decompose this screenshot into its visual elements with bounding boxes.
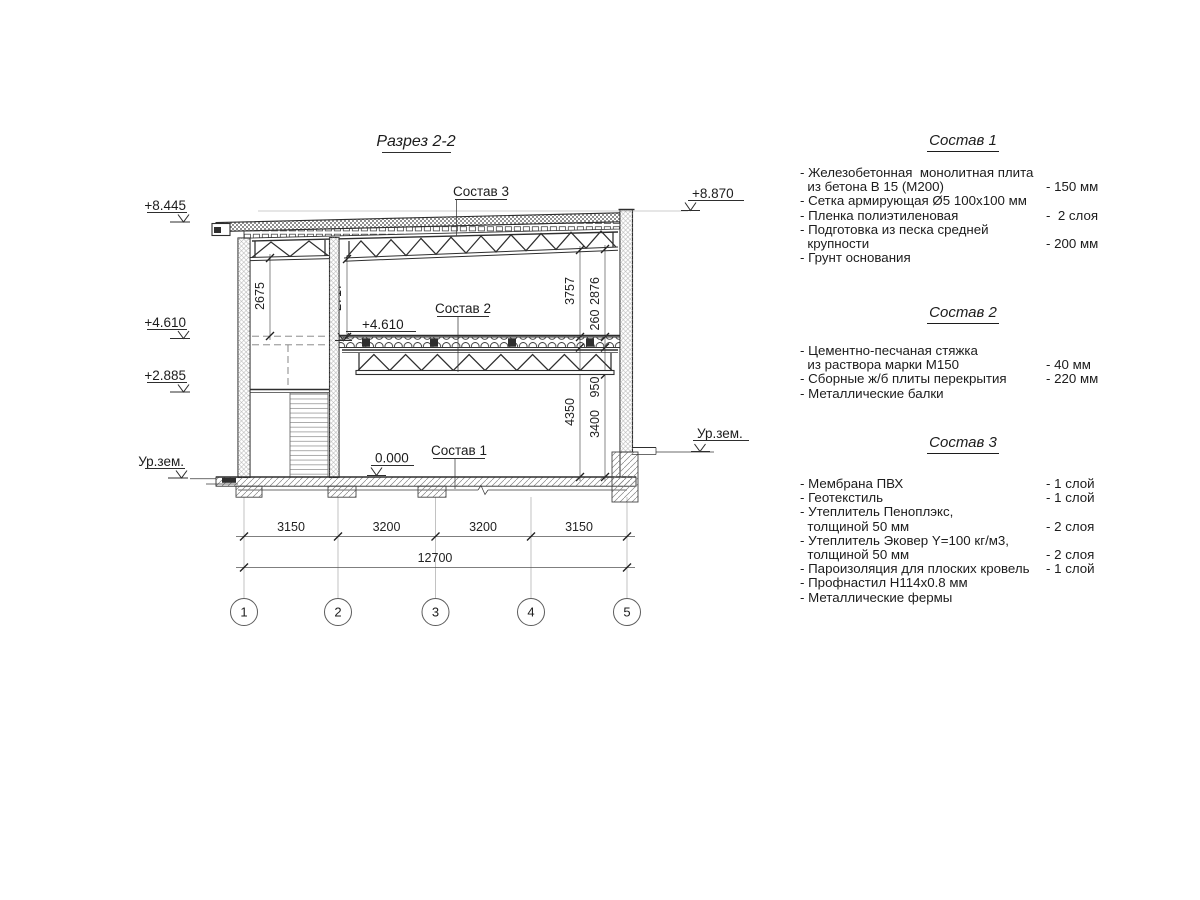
gutter <box>212 224 230 236</box>
dim-3400: 3400 <box>588 410 602 438</box>
layer-thickness: - 150 мм <box>1046 180 1126 194</box>
dim-4350: 4350 <box>563 398 577 426</box>
layer-item: - Железобетонная монолитная плита из бет… <box>800 166 1126 194</box>
dim-950: 950 <box>588 377 602 398</box>
truss-bottom-chord <box>356 371 614 375</box>
layer-item: - Пароизоляция для плоских кровель- 1 сл… <box>800 562 1126 576</box>
axis-5: 5 <box>623 605 630 620</box>
layer-name: - Железобетонная монолитная плита из бет… <box>800 166 1046 194</box>
elevation-roof-left: +8.445 <box>144 198 186 213</box>
composition-heading-1: Состав 1 <box>800 132 1126 150</box>
dim-span-1: 3150 <box>277 520 305 534</box>
layer-list-3: - Мембрана ПВХ- 1 слой - Геотекстиль- 1 … <box>800 477 1126 605</box>
layer-name: - Профнастил Н114х0.8 мм <box>800 576 1046 590</box>
layer-name: - Металлические фермы <box>800 591 1046 605</box>
layer-name: - Пленка полиэтиленовая <box>800 209 1046 223</box>
composition-heading-3: Состав 3 <box>800 434 1126 452</box>
callout-label-2: Состав 2 <box>435 301 491 316</box>
layer-item: - Цементно-песчаная стяжка из раствора м… <box>800 344 1126 372</box>
layer-item: - Мембрана ПВХ- 1 слой <box>800 477 1126 491</box>
layer-name: - Цементно-песчаная стяжка из раствора м… <box>800 344 1046 372</box>
axis-3: 3 <box>432 605 439 620</box>
dim-span-2: 3200 <box>373 520 401 534</box>
layer-item: - Пленка полиэтиленовая- 2 слоя <box>800 209 1126 223</box>
layer-name: - Сборные ж/б плиты перекрытия <box>800 372 1046 386</box>
axis-2: 2 <box>334 605 341 620</box>
callout-label-3: Состав 3 <box>453 184 509 199</box>
hidden-floor-dashed-lines <box>252 336 330 389</box>
dim-3757: 3757 <box>563 277 577 305</box>
layer-item: - Профнастил Н114х0.8 мм <box>800 576 1126 590</box>
right-foundation <box>612 452 638 502</box>
break-symbol <box>478 486 488 495</box>
composition-block-1: Состав 1 - Железобетонная монолитная пли… <box>800 132 1126 265</box>
layer-list-2: - Цементно-песчаная стяжка из раствора м… <box>800 344 1126 401</box>
ground-level-left: Ур.зем. <box>138 454 184 469</box>
layer-thickness: - 1 слой <box>1046 562 1126 576</box>
axis-4: 4 <box>527 605 534 620</box>
layer-thickness: - 200 мм <box>1046 237 1126 251</box>
hollow-core-slab-band <box>339 337 620 348</box>
layer-item: - Грунт основания <box>800 251 1126 265</box>
dim-2876: 2876 <box>588 277 602 305</box>
layer-name: - Утеплитель Пеноплэкс, толщиной 50 мм <box>800 505 1046 533</box>
roof-slab <box>212 213 620 238</box>
stair <box>250 390 333 478</box>
drawing-sheet: 2675 2717 3757 4350 2876 260 950 3400 <box>0 0 1200 900</box>
layer-thickness: - 220 мм <box>1046 372 1126 386</box>
layer-name: - Сетка армирующая Ø5 100х100 мм <box>800 194 1046 208</box>
layer-name: - Геотекстиль <box>800 491 1046 505</box>
layer-thickness: - 40 мм <box>1046 358 1126 372</box>
composition-block-2: Состав 2 - Цементно-песчаная стяжка из р… <box>800 304 1126 401</box>
composition-heading-2: Состав 2 <box>800 304 1126 322</box>
right-wall <box>619 210 635 478</box>
axis2-wall <box>330 238 340 478</box>
elevation-mark-ground-right: Ур.зем. <box>691 426 749 452</box>
composition-heading-3-text: Состав 3 <box>927 434 999 454</box>
dim-2675: 2675 <box>253 282 267 310</box>
layer-thickness: - 2 слоя <box>1046 520 1126 534</box>
layer-name: - Грунт основания <box>800 251 1046 265</box>
elevation-zero: 0.000 <box>375 451 409 466</box>
composition-heading-2-text: Состав 2 <box>927 304 999 324</box>
composition-heading-1-text: Состав 1 <box>927 132 999 152</box>
layer-list-1: - Железобетонная монолитная плита из бет… <box>800 166 1126 265</box>
elevation-mark-landing: +2.885 <box>144 368 190 392</box>
layer-thickness: - 1 слой <box>1046 491 1126 505</box>
layer-item: - Металлические фермы <box>800 591 1126 605</box>
drawing-title: Разрез 2-2 <box>376 133 455 153</box>
layer-thickness: - 1 слой <box>1046 477 1126 491</box>
layer-name: - Подготовка из песка средней крупности <box>800 223 1046 251</box>
layer-thickness: - 2 слоя <box>1046 209 1126 223</box>
layer-item: - Геотекстиль- 1 слой <box>800 491 1126 505</box>
elevation-mark-roof-right: +8.870 <box>681 186 744 211</box>
elevation-mid-left: +4.610 <box>144 315 186 330</box>
layer-name: - Пароизоляция для плоских кровель <box>800 562 1046 576</box>
composition-block-3: Состав 3 - Мембрана ПВХ- 1 слой - Геотек… <box>800 434 1126 605</box>
stair-flight <box>290 393 328 477</box>
layer-thickness: - 2 слоя <box>1046 548 1126 562</box>
layer-item: - Сетка армирующая Ø5 100х100 мм <box>800 194 1126 208</box>
dim-260: 260 <box>588 310 602 331</box>
dim-span-3: 3200 <box>469 520 497 534</box>
callout-label-1: Состав 1 <box>431 443 487 458</box>
layer-name: - Мембрана ПВХ <box>800 477 1046 491</box>
axis-1: 1 <box>240 605 247 620</box>
elevation-mark-roof-left: +8.445 <box>144 198 190 222</box>
layer-item: - Подготовка из песка средней крупности-… <box>800 223 1126 251</box>
mid-floor <box>339 336 620 375</box>
elevation-mid-inner: +4.610 <box>362 317 404 332</box>
dim-span-4: 3150 <box>565 520 593 534</box>
layer-name: - Утеплитель Эковер Y=100 кг/м3, толщино… <box>800 534 1046 562</box>
layer-name: - Металлические балки <box>800 387 1046 401</box>
layer-item: - Утеплитель Эковер Y=100 кг/м3, толщино… <box>800 534 1126 562</box>
elevation-mark-mid-left: +4.610 <box>144 315 190 339</box>
layer-item: - Металлические балки <box>800 387 1126 401</box>
layer-item: - Сборные ж/б плиты перекрытия- 220 мм <box>800 372 1126 386</box>
page-title: Разрез 2-2 <box>376 133 455 150</box>
dim-total: 12700 <box>418 551 453 565</box>
elevation-mark-ground-left: Ур.зем. <box>138 454 188 478</box>
elevation-roof-right: +8.870 <box>692 186 734 201</box>
ground-level-right: Ур.зем. <box>697 426 743 441</box>
elevation-landing: +2.885 <box>144 368 186 383</box>
elevation-mark-zero: 0.000 <box>367 451 414 476</box>
layer-item: - Утеплитель Пеноплэкс, толщиной 50 мм- … <box>800 505 1126 533</box>
axis-bubbles: 1 2 3 4 5 <box>231 599 641 626</box>
left-wall <box>238 238 250 478</box>
threshold <box>222 478 236 483</box>
axis-extension-lines <box>244 497 627 599</box>
